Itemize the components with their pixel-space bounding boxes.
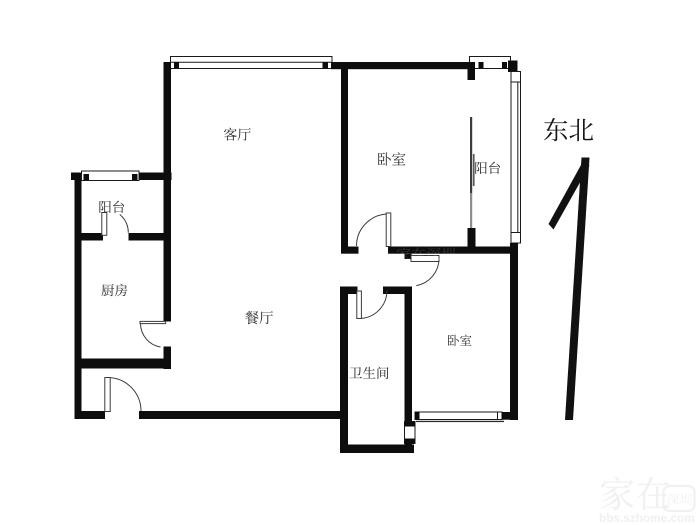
svg-text:bbs.szhome.com: bbs.szhome.com xyxy=(599,511,695,525)
